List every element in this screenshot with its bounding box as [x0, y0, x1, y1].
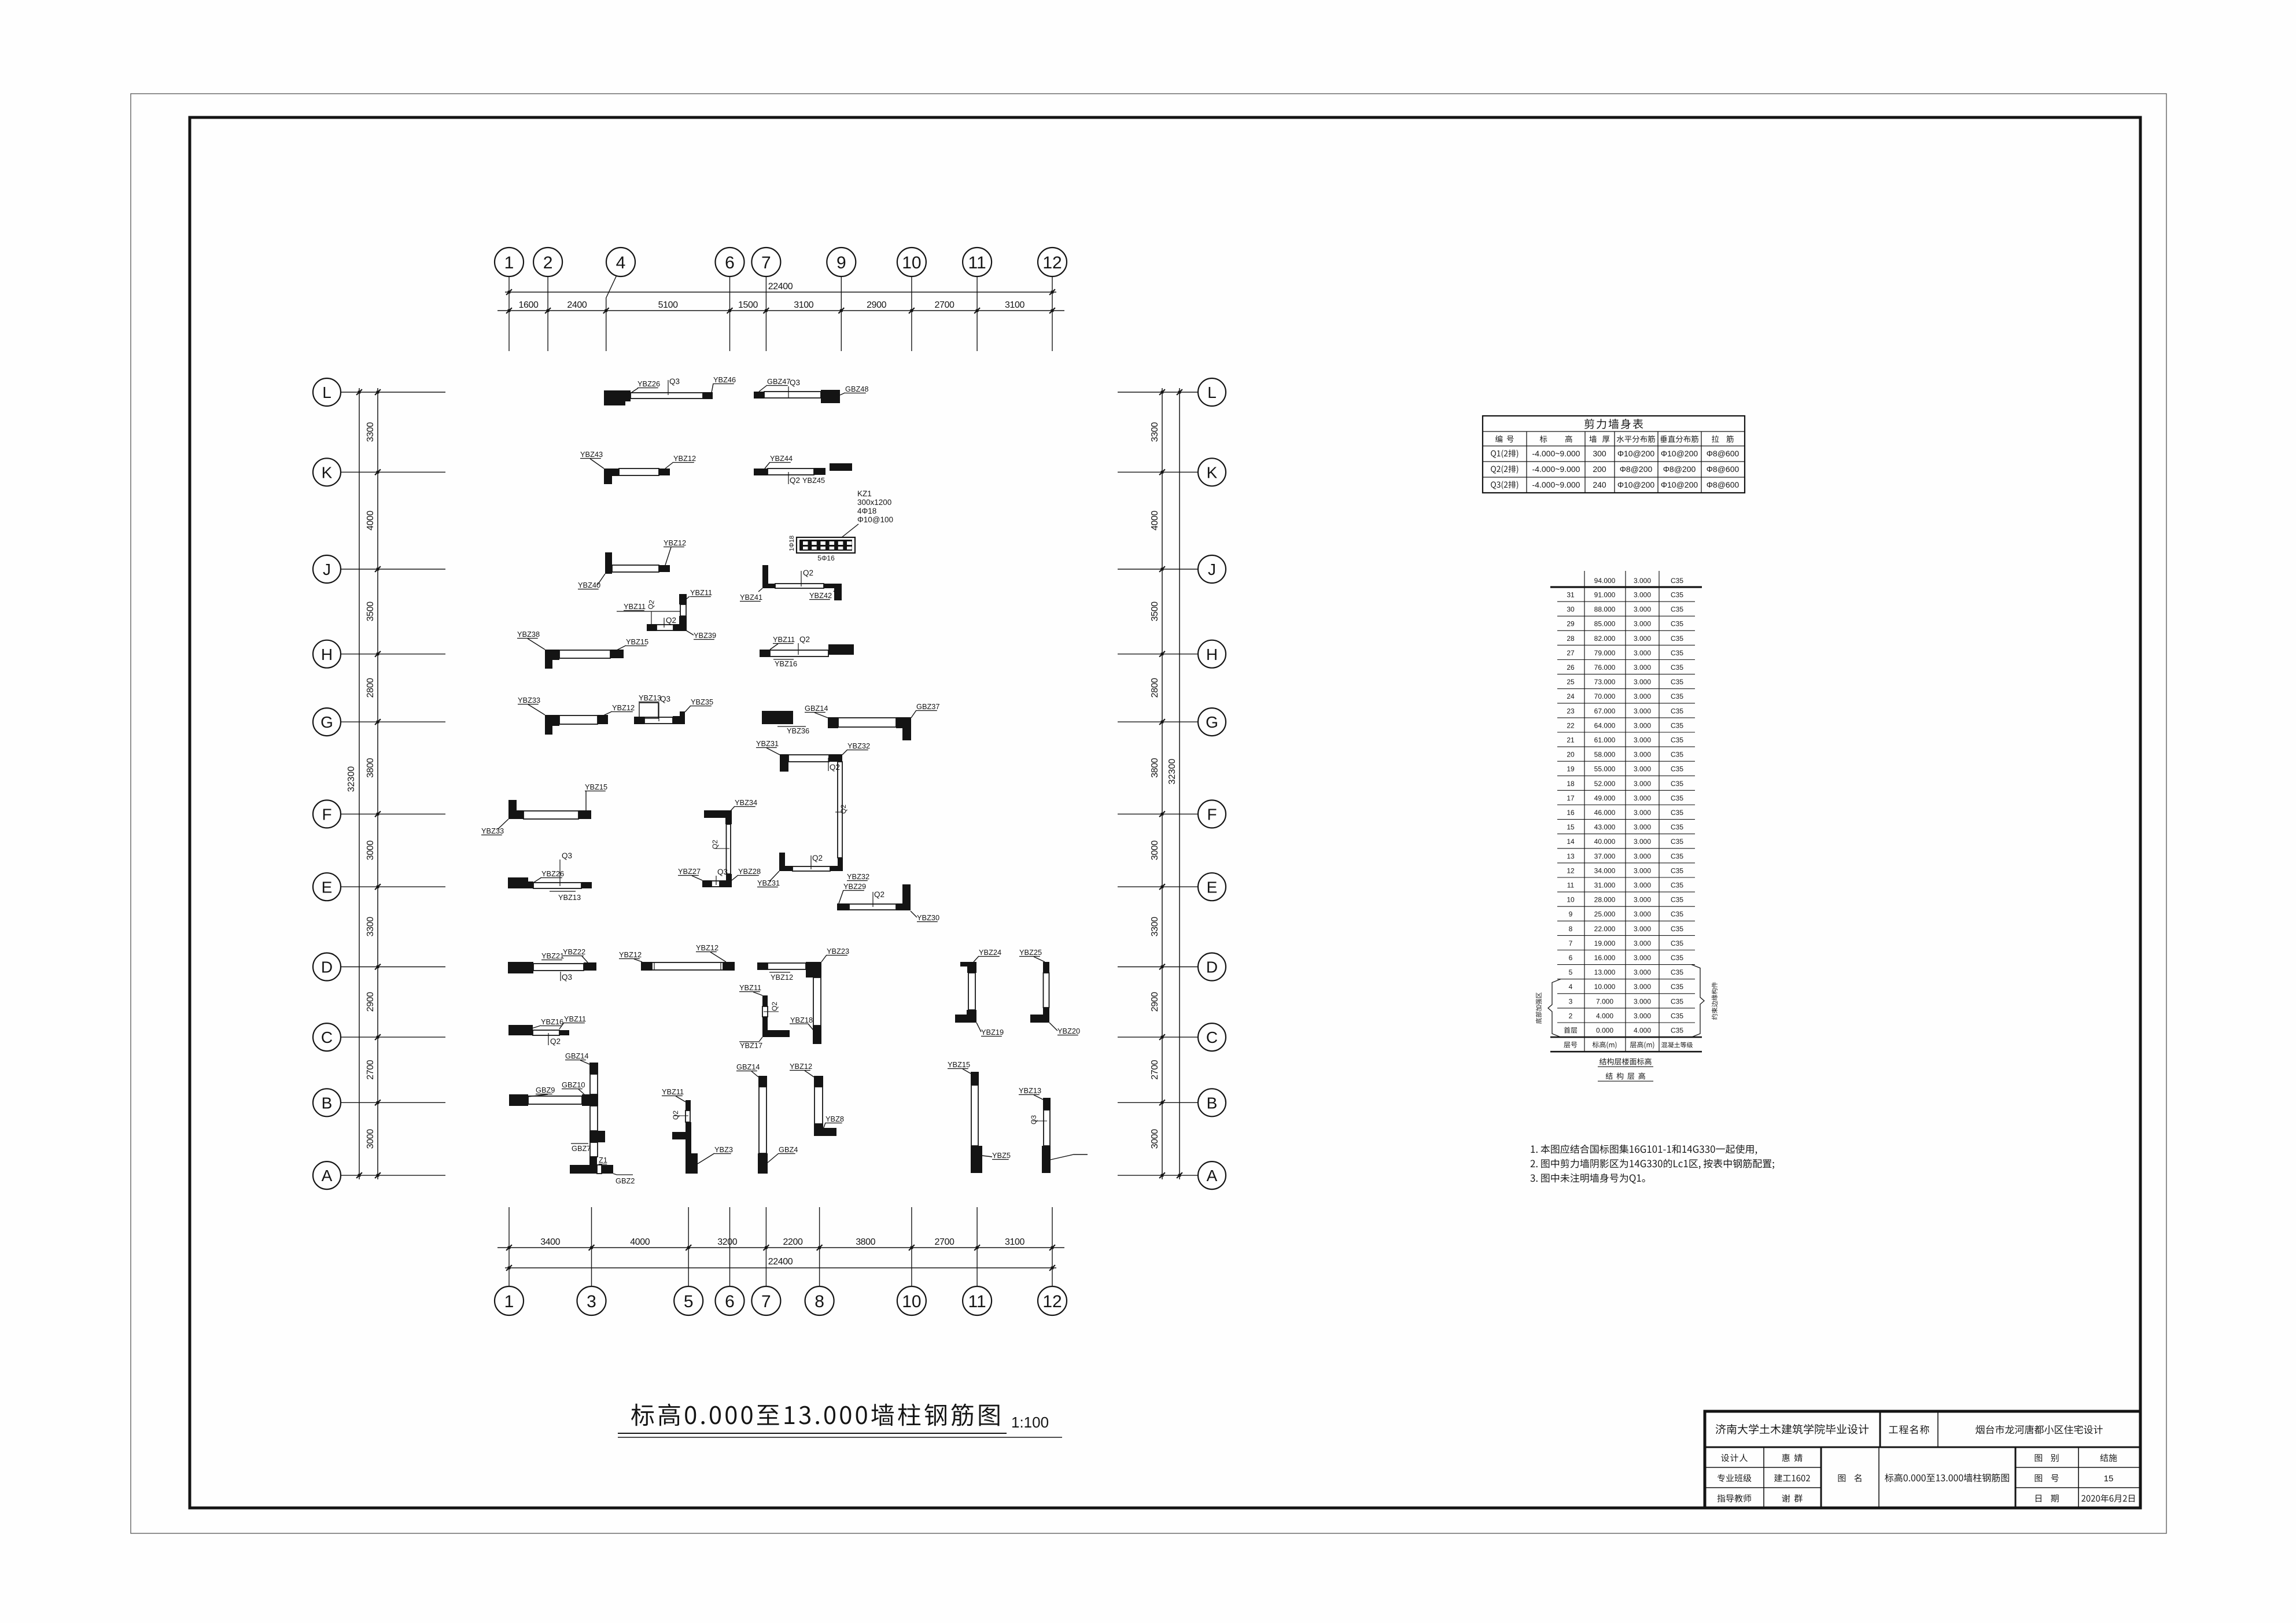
svg-text:YBZ15: YBZ15: [585, 783, 607, 791]
svg-text:YBZ12: YBZ12: [612, 703, 635, 712]
svg-text:3300: 3300: [366, 422, 375, 442]
svg-text:3800: 3800: [366, 758, 375, 777]
svg-text:3.000: 3.000: [1634, 896, 1651, 904]
svg-text:3.000: 3.000: [1634, 954, 1651, 962]
svg-text:GBZ14: GBZ14: [565, 1052, 589, 1060]
svg-text:YBZ31: YBZ31: [757, 879, 780, 887]
svg-text:YBZ46: YBZ46: [713, 375, 736, 384]
svg-text:GBZ47: GBZ47: [767, 377, 791, 386]
svg-text:3.000: 3.000: [1634, 866, 1651, 875]
svg-text:Q2: Q2: [646, 599, 656, 610]
svg-text:C35: C35: [1671, 910, 1683, 919]
svg-text:27: 27: [1567, 649, 1575, 657]
svg-text:F: F: [322, 806, 331, 824]
svg-text:YBZ41: YBZ41: [740, 593, 762, 602]
svg-text:C35: C35: [1671, 620, 1683, 628]
svg-text:11: 11: [1567, 881, 1575, 890]
svg-text:C35: C35: [1671, 881, 1683, 890]
svg-text:88.000: 88.000: [1594, 606, 1616, 614]
svg-text:240: 240: [1593, 480, 1606, 489]
svg-text:B: B: [322, 1094, 333, 1112]
svg-text:Q3: Q3: [790, 378, 800, 387]
svg-text:3000: 3000: [366, 840, 375, 860]
svg-text:22400: 22400: [768, 282, 793, 292]
svg-text:YBZ40: YBZ40: [578, 581, 600, 589]
svg-text:3.000: 3.000: [1634, 620, 1651, 628]
svg-text:K: K: [1207, 463, 1218, 481]
svg-text:C35: C35: [1671, 751, 1683, 759]
svg-text:14: 14: [1567, 838, 1575, 846]
svg-text:3.000: 3.000: [1634, 721, 1651, 729]
svg-text:YBZ39: YBZ39: [694, 631, 716, 640]
svg-text:Φ8@200: Φ8@200: [1620, 464, 1653, 474]
svg-text:YBZ42: YBZ42: [809, 591, 832, 600]
svg-text:3100: 3100: [1005, 300, 1024, 310]
svg-text:Q3: Q3: [717, 868, 728, 876]
svg-text:7.000: 7.000: [1596, 997, 1613, 1005]
svg-text:Φ10@100: Φ10@100: [857, 515, 893, 524]
svg-text:H: H: [321, 645, 333, 663]
svg-text:GBZ9: GBZ9: [536, 1086, 555, 1094]
svg-text:3200: 3200: [717, 1237, 737, 1247]
svg-text:3100: 3100: [1005, 1237, 1024, 1247]
svg-text:YBZ38: YBZ38: [517, 630, 540, 639]
svg-text:6: 6: [725, 1292, 735, 1311]
svg-text:C35: C35: [1671, 997, 1683, 1005]
svg-text:300x1200: 300x1200: [857, 498, 891, 507]
svg-text:C35: C35: [1671, 968, 1683, 976]
svg-text:C35: C35: [1671, 852, 1683, 860]
svg-text:C35: C35: [1671, 678, 1683, 686]
svg-text:31.000: 31.000: [1594, 881, 1616, 890]
svg-text:2700: 2700: [935, 300, 954, 310]
svg-text:YBZ5: YBZ5: [992, 1151, 1011, 1160]
svg-text:10: 10: [902, 253, 921, 272]
svg-text:C35: C35: [1671, 606, 1683, 614]
svg-text:Q2: Q2: [874, 890, 885, 899]
svg-text:C35: C35: [1671, 692, 1683, 700]
svg-text:GBZ7: GBZ7: [572, 1144, 591, 1153]
svg-text:3000: 3000: [1150, 840, 1160, 860]
svg-text:34.000: 34.000: [1594, 866, 1616, 875]
svg-text:76.000: 76.000: [1594, 663, 1616, 672]
svg-text:3.000: 3.000: [1634, 823, 1651, 831]
svg-text:13: 13: [1567, 852, 1575, 860]
svg-text:E: E: [1207, 878, 1218, 896]
svg-text:YBZ18: YBZ18: [790, 1016, 813, 1024]
svg-text:GBZ14: GBZ14: [736, 1063, 760, 1071]
svg-text:5: 5: [684, 1292, 694, 1311]
svg-text:C35: C35: [1671, 925, 1683, 933]
svg-text:Q3: Q3: [669, 377, 680, 386]
svg-text:C35: C35: [1671, 1027, 1683, 1035]
svg-text:YBZ23: YBZ23: [827, 947, 849, 956]
svg-text:YBZ32: YBZ32: [847, 872, 869, 881]
svg-text:15: 15: [2104, 1474, 2114, 1484]
svg-text:18: 18: [1567, 780, 1575, 788]
svg-text:GBZ10: GBZ10: [562, 1080, 585, 1089]
svg-text:YBZ12: YBZ12: [664, 538, 686, 547]
svg-text:2700: 2700: [366, 1060, 375, 1079]
svg-text:52.000: 52.000: [1594, 780, 1616, 788]
svg-text:GBZ14: GBZ14: [805, 704, 828, 713]
svg-text:3000: 3000: [366, 1129, 375, 1149]
svg-text:3800: 3800: [856, 1237, 875, 1247]
svg-text:GBZ48: GBZ48: [845, 385, 869, 393]
svg-text:7: 7: [761, 1292, 771, 1311]
svg-text:4: 4: [616, 253, 626, 272]
svg-text:Z1: Z1: [599, 1156, 607, 1164]
svg-text:3: 3: [1569, 997, 1573, 1005]
svg-text:8: 8: [1569, 925, 1573, 933]
svg-text:YBZ11: YBZ11: [624, 602, 646, 611]
svg-text:28: 28: [1567, 635, 1575, 643]
svg-text:YBZ27: YBZ27: [678, 867, 701, 876]
svg-text:8: 8: [815, 1292, 824, 1311]
svg-text:4000: 4000: [366, 511, 375, 530]
svg-text:3: 3: [587, 1292, 596, 1311]
svg-text:22400: 22400: [768, 1257, 793, 1267]
svg-text:82.000: 82.000: [1594, 635, 1616, 643]
svg-text:19: 19: [1567, 765, 1575, 773]
svg-text:58.000: 58.000: [1594, 751, 1616, 759]
svg-text:C35: C35: [1671, 635, 1683, 643]
svg-text:1500: 1500: [738, 300, 758, 310]
svg-text:C35: C35: [1671, 707, 1683, 715]
svg-text:13.000: 13.000: [1594, 968, 1616, 976]
svg-text:C35: C35: [1671, 809, 1683, 817]
svg-text:1: 1: [504, 1292, 514, 1311]
svg-text:3300: 3300: [366, 917, 375, 936]
svg-text:YBZ11: YBZ11: [690, 588, 712, 597]
svg-text:●●: ●●: [589, 1156, 596, 1161]
svg-text:3.000: 3.000: [1634, 983, 1651, 991]
svg-text:GBZ2: GBZ2: [616, 1176, 635, 1185]
svg-text:2: 2: [543, 253, 553, 272]
svg-text:32300: 32300: [1167, 759, 1177, 785]
svg-text:YBZ29: YBZ29: [843, 882, 866, 891]
svg-text:YBZ35: YBZ35: [691, 698, 713, 706]
svg-text:A: A: [322, 1167, 333, 1185]
svg-text:YBZ8: YBZ8: [825, 1115, 844, 1123]
svg-text:22: 22: [1567, 721, 1575, 729]
svg-text:YBZ19: YBZ19: [981, 1028, 1004, 1036]
svg-text:11: 11: [968, 253, 986, 272]
svg-text:3.000: 3.000: [1634, 577, 1651, 585]
svg-text:3.000: 3.000: [1634, 939, 1651, 947]
svg-text:40.000: 40.000: [1594, 838, 1616, 846]
svg-text:79.000: 79.000: [1594, 649, 1616, 657]
svg-text:29: 29: [1567, 620, 1575, 628]
svg-text:200: 200: [1593, 464, 1606, 474]
svg-text:3500: 3500: [1150, 602, 1160, 621]
svg-text:GBZ4: GBZ4: [779, 1145, 798, 1154]
svg-text:YBZ13: YBZ13: [639, 694, 661, 702]
svg-text:YBZ26: YBZ26: [637, 379, 660, 388]
svg-text:YBZ13: YBZ13: [1019, 1086, 1041, 1095]
svg-text:YBZ22: YBZ22: [563, 947, 585, 956]
svg-text:Q2: Q2: [803, 569, 813, 577]
svg-text:3.000: 3.000: [1634, 1012, 1651, 1020]
svg-text:-4.000~9.000: -4.000~9.000: [1532, 464, 1580, 474]
svg-text:C: C: [321, 1028, 333, 1046]
svg-text:1: 1: [504, 253, 514, 272]
svg-text:Q2: Q2: [550, 1037, 561, 1046]
svg-text:Φ10@200: Φ10@200: [1617, 449, 1655, 458]
svg-text:YBZ11: YBZ11: [662, 1087, 684, 1096]
svg-text:YBZ31: YBZ31: [756, 739, 779, 748]
svg-text:85.000: 85.000: [1594, 620, 1616, 628]
svg-text:5: 5: [1569, 968, 1573, 976]
svg-text:3.000: 3.000: [1634, 968, 1651, 976]
svg-text:YBZ34: YBZ34: [735, 798, 757, 807]
svg-text:3.000: 3.000: [1634, 794, 1651, 802]
svg-text:Q2: Q2: [799, 635, 810, 644]
svg-text:300: 300: [1593, 449, 1606, 458]
svg-text:5Φ16: 5Φ16: [817, 554, 835, 562]
svg-text:C35: C35: [1671, 823, 1683, 831]
svg-text:YBZ44: YBZ44: [770, 454, 793, 463]
svg-text:3.000: 3.000: [1634, 692, 1651, 700]
svg-text:YBZ28: YBZ28: [738, 867, 761, 876]
svg-text:Φ10@200: Φ10@200: [1661, 449, 1698, 458]
svg-text:12: 12: [1042, 1292, 1062, 1311]
svg-text:16.000: 16.000: [1594, 954, 1616, 962]
svg-text:YBZ45: YBZ45: [802, 476, 825, 485]
svg-text:20: 20: [1567, 751, 1575, 759]
svg-text:C35: C35: [1671, 939, 1683, 947]
svg-text:Q2: Q2: [771, 1002, 779, 1011]
svg-text:YBZ16: YBZ16: [541, 1017, 563, 1026]
svg-text:D: D: [1206, 958, 1218, 976]
svg-text:3.000: 3.000: [1634, 838, 1651, 846]
svg-text:55.000: 55.000: [1594, 765, 1616, 773]
svg-text:-4.000~9.000: -4.000~9.000: [1532, 480, 1580, 489]
svg-text:4000: 4000: [630, 1237, 650, 1247]
svg-text:YBZ30: YBZ30: [917, 913, 939, 922]
svg-text:Q2: Q2: [711, 840, 719, 849]
svg-text:-4.000~9.000: -4.000~9.000: [1532, 449, 1580, 458]
svg-text:2900: 2900: [867, 300, 886, 310]
svg-text:Q3: Q3: [562, 851, 572, 860]
svg-text:YBZ36: YBZ36: [787, 726, 809, 735]
svg-text:3400: 3400: [540, 1237, 560, 1247]
svg-text:25: 25: [1567, 678, 1575, 686]
svg-text:C35: C35: [1671, 794, 1683, 802]
svg-text:30: 30: [1567, 606, 1575, 614]
svg-text:46.000: 46.000: [1594, 809, 1616, 817]
svg-text:YBZ32: YBZ32: [847, 742, 870, 750]
svg-text:C35: C35: [1671, 983, 1683, 991]
svg-text:3.000: 3.000: [1634, 678, 1651, 686]
svg-text:2200: 2200: [783, 1237, 803, 1247]
svg-text:2: 2: [1569, 1012, 1573, 1020]
svg-text:C35: C35: [1671, 765, 1683, 773]
svg-text:2800: 2800: [1150, 678, 1160, 698]
svg-text:2700: 2700: [935, 1237, 954, 1247]
svg-text:Q2: Q2: [812, 854, 823, 862]
svg-text:YBZ17: YBZ17: [740, 1041, 762, 1050]
svg-text:12: 12: [1042, 253, 1062, 272]
svg-text:31: 31: [1567, 591, 1575, 599]
svg-text:22.000: 22.000: [1594, 925, 1616, 933]
svg-text:2900: 2900: [1150, 992, 1160, 1012]
svg-text:3.000: 3.000: [1634, 852, 1651, 860]
svg-text:C35: C35: [1671, 649, 1683, 657]
svg-text:C35: C35: [1671, 896, 1683, 904]
svg-text:3.000: 3.000: [1634, 881, 1651, 890]
svg-text:3.000: 3.000: [1634, 925, 1651, 933]
svg-text:4.000: 4.000: [1596, 1012, 1613, 1020]
svg-text:3.000: 3.000: [1634, 910, 1651, 919]
svg-text:YBZ25: YBZ25: [1019, 948, 1042, 957]
svg-text:G: G: [320, 713, 333, 731]
svg-text:91.000: 91.000: [1594, 591, 1616, 599]
svg-text:10: 10: [1567, 896, 1575, 904]
svg-text:17: 17: [1567, 794, 1575, 802]
svg-text:Φ10@200: Φ10@200: [1661, 480, 1698, 489]
svg-text:L: L: [1207, 383, 1217, 401]
svg-text:9: 9: [1569, 910, 1573, 919]
svg-text:16: 16: [1567, 809, 1575, 817]
svg-text:73.000: 73.000: [1594, 678, 1616, 686]
svg-text:A: A: [1207, 1167, 1218, 1185]
svg-text:YBZ20: YBZ20: [1057, 1027, 1080, 1035]
svg-text:Φ8@600: Φ8@600: [1707, 464, 1739, 474]
svg-text:C35: C35: [1671, 954, 1683, 962]
svg-text:12: 12: [1567, 866, 1575, 875]
svg-text:YBZ43: YBZ43: [580, 450, 603, 459]
svg-text:2800: 2800: [366, 678, 375, 698]
svg-text:3300: 3300: [1150, 917, 1160, 936]
svg-text:49.000: 49.000: [1594, 794, 1616, 802]
svg-text:11: 11: [968, 1292, 986, 1311]
svg-text:3.000: 3.000: [1634, 780, 1651, 788]
svg-text:1Φ18: 1Φ18: [788, 536, 795, 551]
svg-text:YBZ11: YBZ11: [773, 635, 795, 644]
svg-text:Q3: Q3: [1030, 1115, 1038, 1124]
svg-text:Φ8@600: Φ8@600: [1707, 449, 1739, 458]
svg-text:23: 23: [1567, 707, 1575, 715]
svg-text:0.000: 0.000: [1596, 1027, 1613, 1035]
svg-text:24: 24: [1567, 692, 1575, 700]
svg-text:61.000: 61.000: [1594, 736, 1616, 744]
svg-text:3.000: 3.000: [1634, 809, 1651, 817]
svg-text:26: 26: [1567, 663, 1575, 672]
svg-text:3.000: 3.000: [1634, 606, 1651, 614]
svg-text:67.000: 67.000: [1594, 707, 1616, 715]
svg-text:C35: C35: [1671, 866, 1683, 875]
svg-text:7: 7: [761, 253, 771, 272]
svg-text:3.000: 3.000: [1634, 707, 1651, 715]
svg-text:G: G: [1206, 713, 1218, 731]
svg-text:25.000: 25.000: [1594, 910, 1616, 919]
svg-text:3.000: 3.000: [1634, 649, 1651, 657]
svg-text:64.000: 64.000: [1594, 721, 1616, 729]
svg-text:YBZ12: YBZ12: [696, 943, 718, 952]
svg-text:YBZ12: YBZ12: [790, 1062, 812, 1071]
svg-text:6: 6: [1569, 954, 1573, 962]
svg-text:Q2: Q2: [672, 1111, 680, 1120]
svg-text:43.000: 43.000: [1594, 823, 1616, 831]
svg-text:Q3: Q3: [562, 973, 572, 982]
svg-text:YBZ33: YBZ33: [481, 827, 504, 835]
svg-text:1:100: 1:100: [1011, 1414, 1049, 1431]
svg-text:C35: C35: [1671, 577, 1683, 585]
svg-text:37.000: 37.000: [1594, 852, 1616, 860]
svg-text:D: D: [321, 958, 333, 976]
svg-text:C35: C35: [1671, 591, 1683, 599]
svg-text:6: 6: [725, 253, 735, 272]
svg-text:94.000: 94.000: [1594, 577, 1616, 585]
svg-text:Q3: Q3: [660, 695, 670, 703]
svg-text:KZ1: KZ1: [857, 489, 872, 498]
svg-text:Q2: Q2: [666, 616, 676, 625]
svg-text:F: F: [1207, 806, 1217, 824]
svg-text:YBZ3: YBZ3: [714, 1145, 733, 1154]
svg-text:1600: 1600: [519, 300, 539, 310]
svg-text:3500: 3500: [366, 602, 375, 621]
svg-text:2700: 2700: [1150, 1060, 1160, 1079]
svg-text:YBZ12: YBZ12: [673, 454, 696, 463]
svg-text:9: 9: [836, 253, 846, 272]
svg-text:YBZ11: YBZ11: [739, 983, 761, 992]
svg-text:K: K: [322, 463, 333, 481]
svg-text:19.000: 19.000: [1594, 939, 1616, 947]
svg-text:3.000: 3.000: [1634, 765, 1651, 773]
svg-text:5100: 5100: [658, 300, 678, 310]
svg-text:Q2: Q2: [790, 476, 800, 485]
svg-text:YBZ26: YBZ26: [541, 869, 564, 878]
svg-text:3.000: 3.000: [1634, 997, 1651, 1005]
svg-text:2900: 2900: [366, 992, 375, 1012]
svg-text:J: J: [1208, 560, 1216, 578]
svg-text:32300: 32300: [347, 766, 356, 792]
svg-text:C35: C35: [1671, 721, 1683, 729]
svg-text:C35: C35: [1671, 1012, 1683, 1020]
svg-text:YBZ12: YBZ12: [619, 950, 642, 959]
svg-text:GBZ37: GBZ37: [916, 702, 940, 711]
svg-text:YBZ16: YBZ16: [775, 659, 797, 668]
svg-text:2400: 2400: [567, 300, 587, 310]
svg-text:3000: 3000: [1150, 1129, 1160, 1149]
svg-text:4Φ18: 4Φ18: [857, 507, 876, 515]
svg-text:15: 15: [1567, 823, 1575, 831]
svg-text:4.000: 4.000: [1634, 1027, 1651, 1035]
svg-text:YBZ33: YBZ33: [518, 696, 540, 704]
svg-text:H: H: [1206, 645, 1218, 663]
svg-text:3.000: 3.000: [1634, 751, 1651, 759]
svg-text:L: L: [322, 383, 331, 401]
svg-text:3300: 3300: [1150, 422, 1160, 442]
svg-text:B: B: [1207, 1094, 1218, 1112]
svg-text:3800: 3800: [1150, 758, 1160, 777]
svg-text:4000: 4000: [1150, 511, 1160, 530]
svg-text:10.000: 10.000: [1594, 983, 1616, 991]
svg-text:C: C: [1206, 1028, 1218, 1046]
svg-text:3100: 3100: [794, 300, 813, 310]
svg-text:C35: C35: [1671, 780, 1683, 788]
svg-text:YBZ13: YBZ13: [558, 893, 581, 902]
svg-text:C35: C35: [1671, 663, 1683, 672]
svg-text:3.000: 3.000: [1634, 591, 1651, 599]
svg-text:Φ8@600: Φ8@600: [1707, 480, 1739, 489]
svg-text:70.000: 70.000: [1594, 692, 1616, 700]
svg-text:21: 21: [1567, 736, 1575, 744]
svg-text:C35: C35: [1671, 838, 1683, 846]
svg-text:YBZ24: YBZ24: [979, 948, 1001, 957]
svg-text:3.000: 3.000: [1634, 736, 1651, 744]
